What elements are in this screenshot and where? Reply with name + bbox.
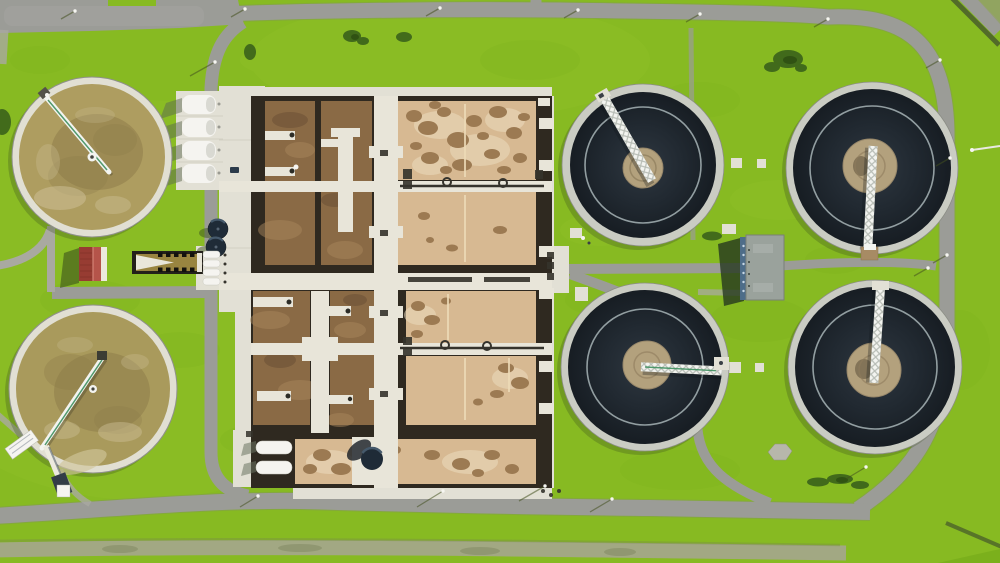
drive-platform [872, 281, 889, 290]
west-connector-road [52, 292, 213, 293]
parked-vehicle [230, 167, 239, 173]
scene-canvas [0, 0, 1000, 563]
basin-top-wall [265, 87, 552, 97]
operations-building [718, 235, 784, 306]
center-path-east [780, 262, 936, 266]
aeration-basin-block [219, 96, 561, 497]
center-path-west [560, 268, 744, 269]
aerial-photo-wastewater-plant [0, 0, 1000, 563]
